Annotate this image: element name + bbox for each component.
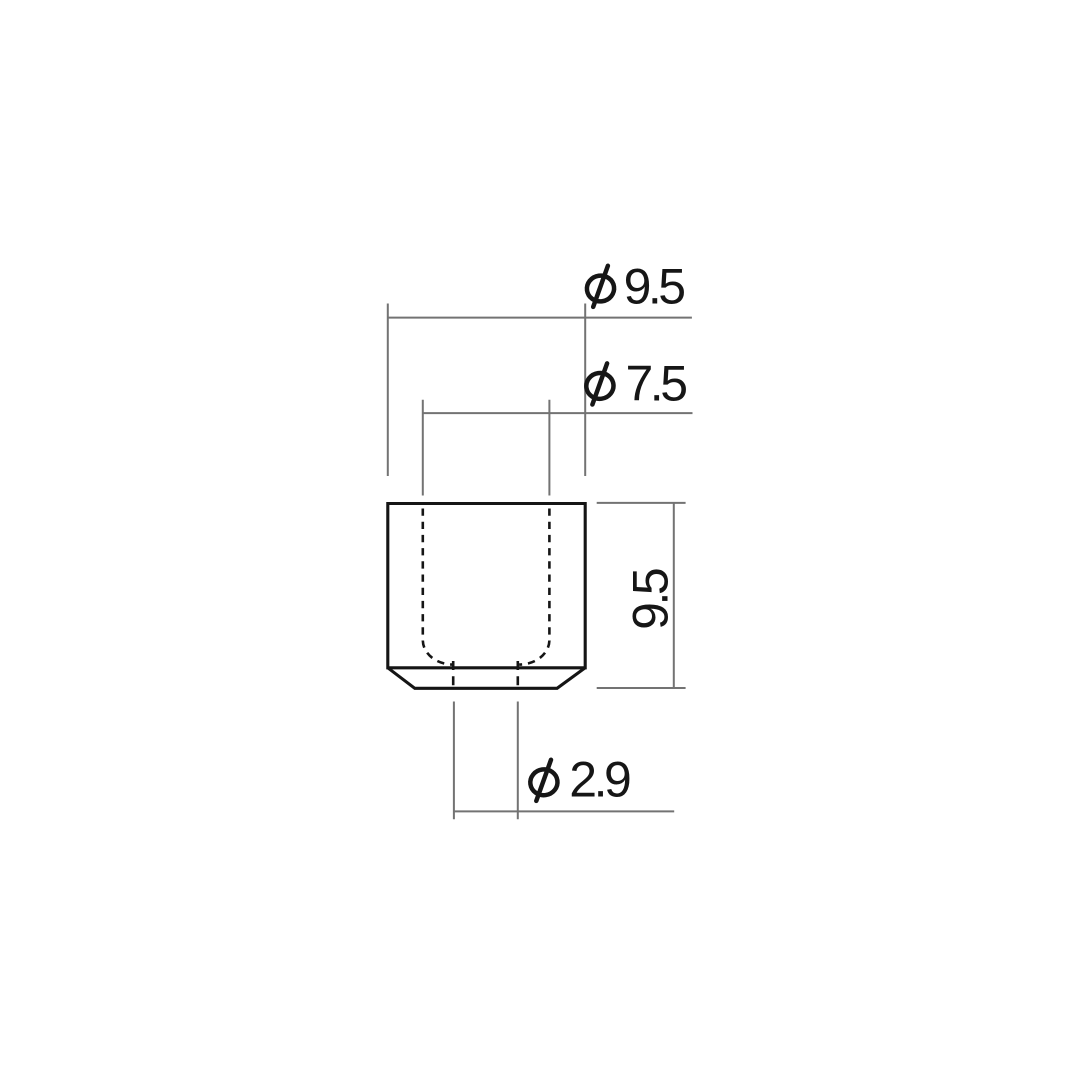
svg-text:2.9: 2.9: [569, 752, 630, 808]
svg-text:7.5: 7.5: [626, 355, 687, 411]
svg-text:9.5: 9.5: [623, 569, 679, 630]
svg-text:9.5: 9.5: [624, 259, 685, 315]
